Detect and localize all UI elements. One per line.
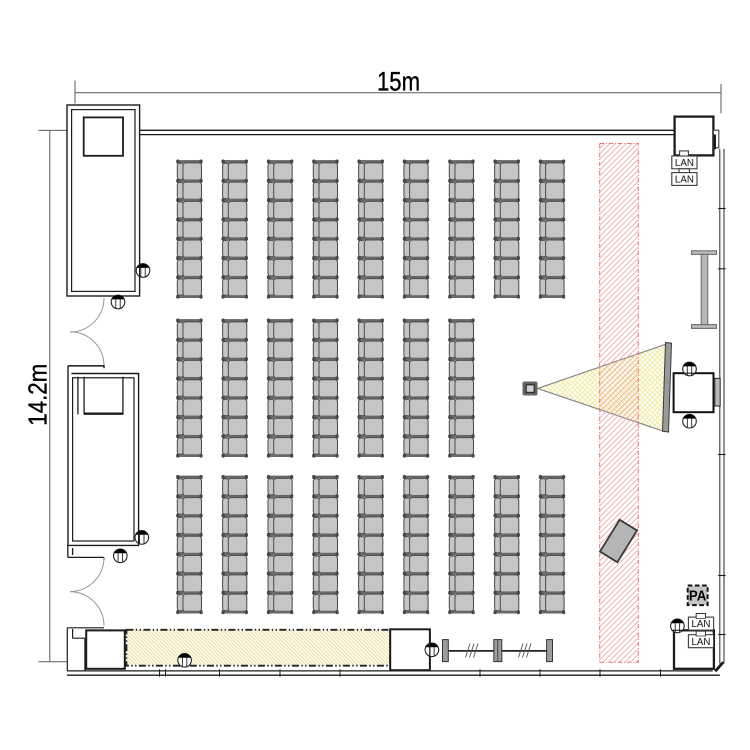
svg-text:PA: PA <box>689 588 707 605</box>
svg-text:LAN: LAN <box>675 174 694 186</box>
svg-text:15m: 15m <box>377 67 420 97</box>
svg-text:LAN: LAN <box>675 157 694 169</box>
svg-text:14.2m: 14.2m <box>22 364 52 426</box>
